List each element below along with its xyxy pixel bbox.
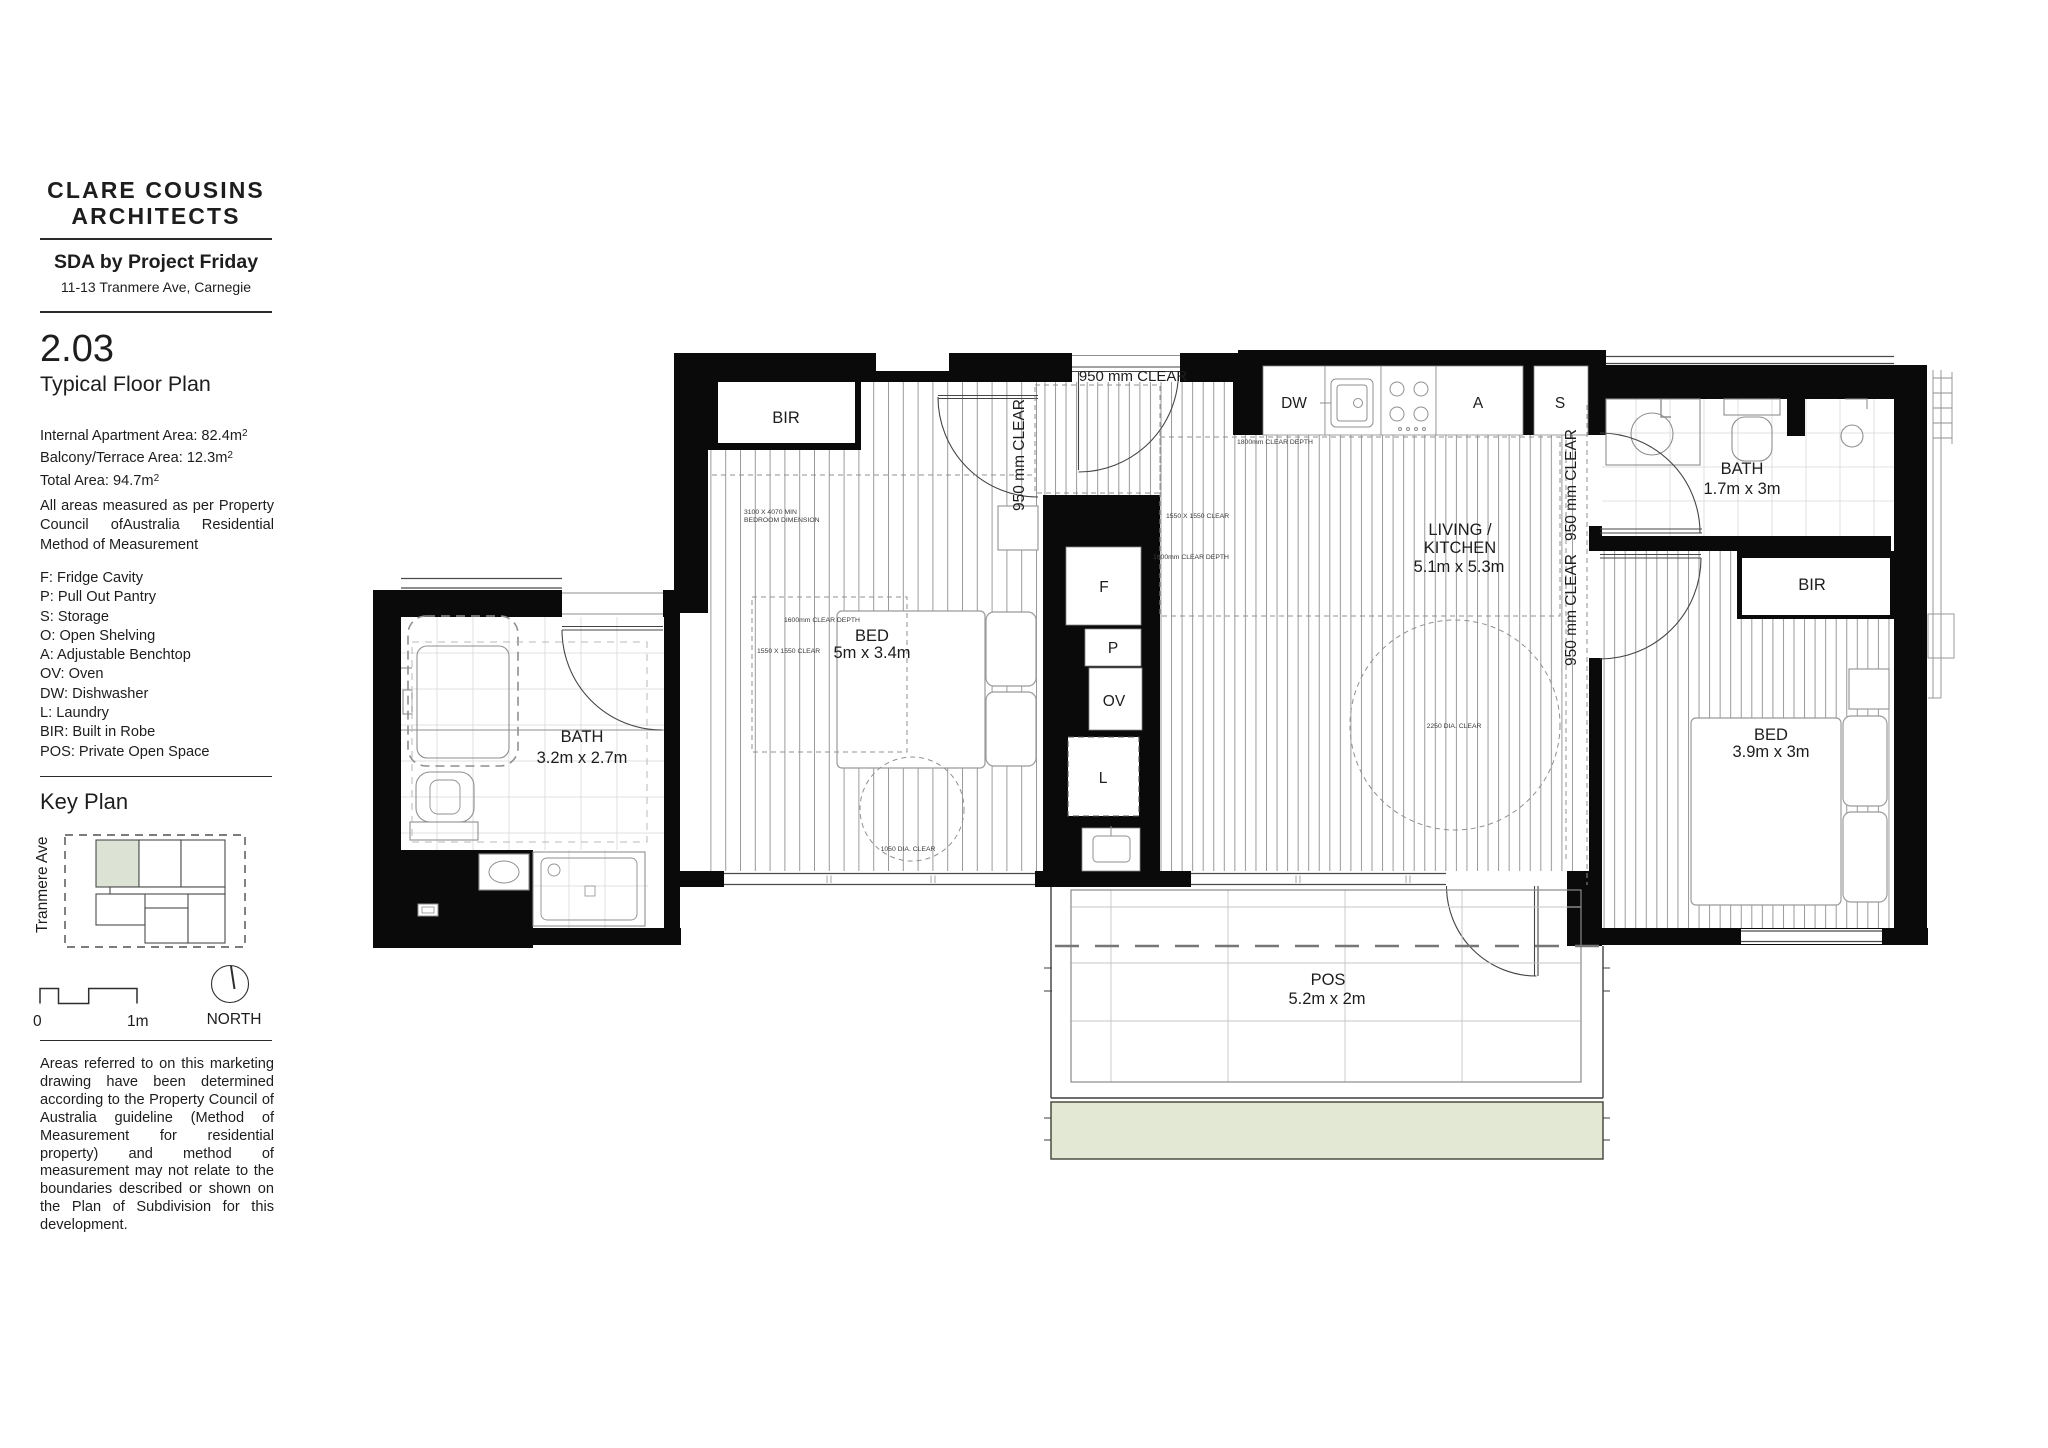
- svg-text:1600mm CLEAR DEPTH: 1600mm CLEAR DEPTH: [1153, 554, 1229, 561]
- svg-text:OV: OV: [1103, 693, 1126, 710]
- svg-text:A: A: [1473, 395, 1484, 412]
- svg-text:BATH: BATH: [561, 728, 604, 746]
- svg-text:3.9m x 3m: 3.9m x 3m: [1732, 743, 1809, 761]
- svg-text:BATH: BATH: [1721, 460, 1764, 478]
- svg-text:1.7m x 3m: 1.7m x 3m: [1703, 480, 1780, 498]
- svg-text:BIR: BIR: [1798, 576, 1826, 594]
- svg-text:S: S: [1555, 395, 1565, 412]
- svg-text:1550 X 1550 CLEAR: 1550 X 1550 CLEAR: [757, 648, 820, 655]
- svg-text:NORTH: NORTH: [207, 1011, 262, 1028]
- svg-text:BED: BED: [1754, 726, 1788, 744]
- svg-text:0: 0: [33, 1013, 42, 1030]
- svg-text:1550 X 1550 CLEAR: 1550 X 1550 CLEAR: [1166, 513, 1229, 520]
- svg-text:2250 DIA. CLEAR: 2250 DIA. CLEAR: [1427, 723, 1482, 730]
- svg-text:POS: POS: [1311, 971, 1346, 989]
- svg-text:5.2m x 2m: 5.2m x 2m: [1288, 990, 1365, 1008]
- svg-text:950 mm CLEAR: 950 mm CLEAR: [1563, 429, 1580, 541]
- svg-text:1800mm CLEAR DEPTH: 1800mm CLEAR DEPTH: [1237, 439, 1313, 446]
- svg-text:P: P: [1108, 640, 1118, 657]
- svg-text:BED: BED: [855, 627, 889, 645]
- svg-text:KITCHEN: KITCHEN: [1424, 539, 1496, 557]
- svg-text:L: L: [1099, 770, 1108, 787]
- svg-text:5m x 3.4m: 5m x 3.4m: [833, 644, 910, 662]
- svg-text:LIVING /: LIVING /: [1428, 521, 1492, 539]
- svg-text:3.2m x 2.7m: 3.2m x 2.7m: [537, 749, 628, 767]
- svg-text:Tranmere Ave: Tranmere Ave: [34, 837, 51, 934]
- svg-text:BIR: BIR: [772, 409, 800, 427]
- svg-text:3100 X 4070 MIN: 3100 X 4070 MIN: [744, 509, 797, 516]
- svg-text:F: F: [1099, 579, 1108, 596]
- svg-text:950 mm CLEAR: 950 mm CLEAR: [1011, 399, 1028, 511]
- svg-text:5.1m x 5.3m: 5.1m x 5.3m: [1414, 558, 1505, 576]
- svg-text:1600mm CLEAR DEPTH: 1600mm CLEAR DEPTH: [784, 617, 860, 624]
- svg-text:950 mm CLEAR: 950 mm CLEAR: [1563, 554, 1580, 666]
- svg-text:BEDROOM DIMENSION: BEDROOM DIMENSION: [744, 517, 820, 524]
- svg-text:DW: DW: [1281, 395, 1307, 412]
- svg-text:950 mm CLEAR: 950 mm CLEAR: [1079, 368, 1188, 385]
- svg-text:1m: 1m: [127, 1013, 149, 1030]
- svg-text:1050 DIA. CLEAR: 1050 DIA. CLEAR: [881, 846, 936, 853]
